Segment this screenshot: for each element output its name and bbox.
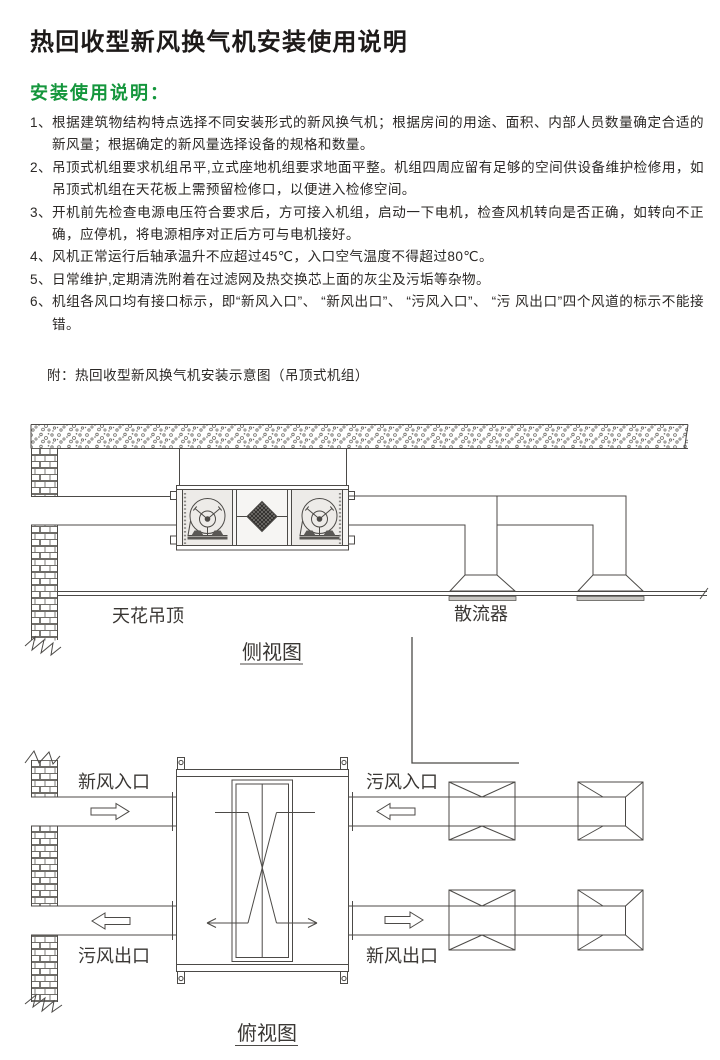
item-number: 4、 xyxy=(30,246,52,268)
item-text: 风机正常运行后轴承温升不应超过45℃，入口空气温度不得超过80℃。 xyxy=(52,246,704,268)
diffuser-label: 散流器 xyxy=(454,604,508,624)
instruction-item: 4、 风机正常运行后轴承温升不应超过45℃，入口空气温度不得超过80℃。 xyxy=(30,246,704,268)
ceiling-slab xyxy=(31,425,688,449)
installation-diagram: 天花吊顶 散流器 侧视图 xyxy=(0,410,720,1060)
flow-arrow-left-icon xyxy=(377,804,415,820)
item-number: 1、 xyxy=(30,112,52,157)
foul-air-inlet-label: 污风入口 xyxy=(366,772,438,792)
fresh-air-outlet-label: 新风出口 xyxy=(366,946,438,966)
diffuser-box xyxy=(449,782,515,840)
item-text: 日常维护,定期清洗附着在过滤网及热交换芯上面的灰尘及污垢等杂物。 xyxy=(52,269,704,291)
item-number: 2、 xyxy=(30,157,52,202)
hanger-rods xyxy=(180,449,347,486)
mount-bracket xyxy=(341,758,348,770)
section-heading: 安装使用说明： xyxy=(30,81,170,105)
item-number: 3、 xyxy=(30,202,52,247)
diffuser-cone xyxy=(578,575,643,591)
item-text: 机组各风口均有接口标示，即“新风入口”、 “新风出口”、 “污风入口”、 “污 … xyxy=(52,291,704,336)
top-view-title: 俯视图 xyxy=(237,1022,297,1045)
side-view-title: 侧视图 xyxy=(242,641,302,664)
wall-brick xyxy=(32,449,58,641)
ceiling-label: 天花吊顶 xyxy=(112,606,184,626)
item-number: 6、 xyxy=(30,291,52,336)
unit-side-view xyxy=(171,486,355,551)
instruction-item: 5、 日常维护,定期清洗附着在过滤网及热交换芯上面的灰尘及污垢等杂物。 xyxy=(30,269,704,291)
diffuser-face xyxy=(577,597,644,601)
instruction-item: 2、 吊顶式机组要求机组吊平,立式座地机组要求地面平整。机组四周应留有足够的空间… xyxy=(30,157,704,202)
instruction-list: 1、 根据建筑物结构特点选择不同安装形式的新风换气机；根据房间的用途、面积、内部… xyxy=(30,112,704,336)
item-number: 5、 xyxy=(30,269,52,291)
top-view-diagram: 新风入口 污风入口 污风出口 新风出口 俯视图 xyxy=(25,751,643,1046)
view-connector-line xyxy=(412,637,519,763)
instruction-item: 6、 机组各风口均有接口标示，即“新风入口”、 “新风出口”、 “污风入口”、 … xyxy=(30,291,704,336)
diffuser-cone xyxy=(450,575,515,591)
flange-tab xyxy=(349,536,355,544)
diffuser-box xyxy=(449,890,515,950)
side-view-diagram: 天花吊顶 散流器 侧视图 xyxy=(25,425,708,665)
wall-brick xyxy=(32,760,58,1002)
fresh-air-inlet-label: 新风入口 xyxy=(78,772,150,792)
foul-air-outlet-label: 污风出口 xyxy=(78,946,150,966)
item-text: 吊顶式机组要求机组吊平,立式座地机组要求地面平整。机组四周应留有足够的空间供设备… xyxy=(52,157,704,202)
fresh-air-outlet-run xyxy=(349,890,644,950)
page-title: 热回收型新风换气机安装使用说明 xyxy=(30,28,408,58)
instruction-document: 热回收型新风换气机安装使用说明 安装使用说明： 1、 根据建筑物结构特点选择不同… xyxy=(0,0,720,1060)
instruction-item: 1、 根据建筑物结构特点选择不同安装形式的新风换气机；根据房间的用途、面积、内部… xyxy=(30,112,704,157)
item-text: 开机前先检查电源电压符合要求后，方可接入机组，启动一下电机，检查风机转向是否正确… xyxy=(52,202,704,247)
flow-arrow-right-icon xyxy=(385,912,423,928)
appendix-note: 附：热回收型新风换气机安装示意图（吊顶式机组） xyxy=(47,366,369,386)
mount-bracket xyxy=(178,972,185,984)
item-text: 根据建筑物结构特点选择不同安装形式的新风换气机；根据房间的用途、面积、内部人员数… xyxy=(52,112,704,157)
supply-ductwork xyxy=(349,496,644,591)
mount-bracket xyxy=(178,758,185,770)
unit-top-view xyxy=(177,758,353,984)
flange-tab xyxy=(171,536,177,544)
flange-tab xyxy=(171,492,177,500)
diffuser-face xyxy=(449,597,516,601)
mount-bracket xyxy=(341,972,348,984)
instruction-item: 3、 开机前先检查电源电压符合要求后，方可接入机组，启动一下电机，检查风机转向是… xyxy=(30,202,704,247)
